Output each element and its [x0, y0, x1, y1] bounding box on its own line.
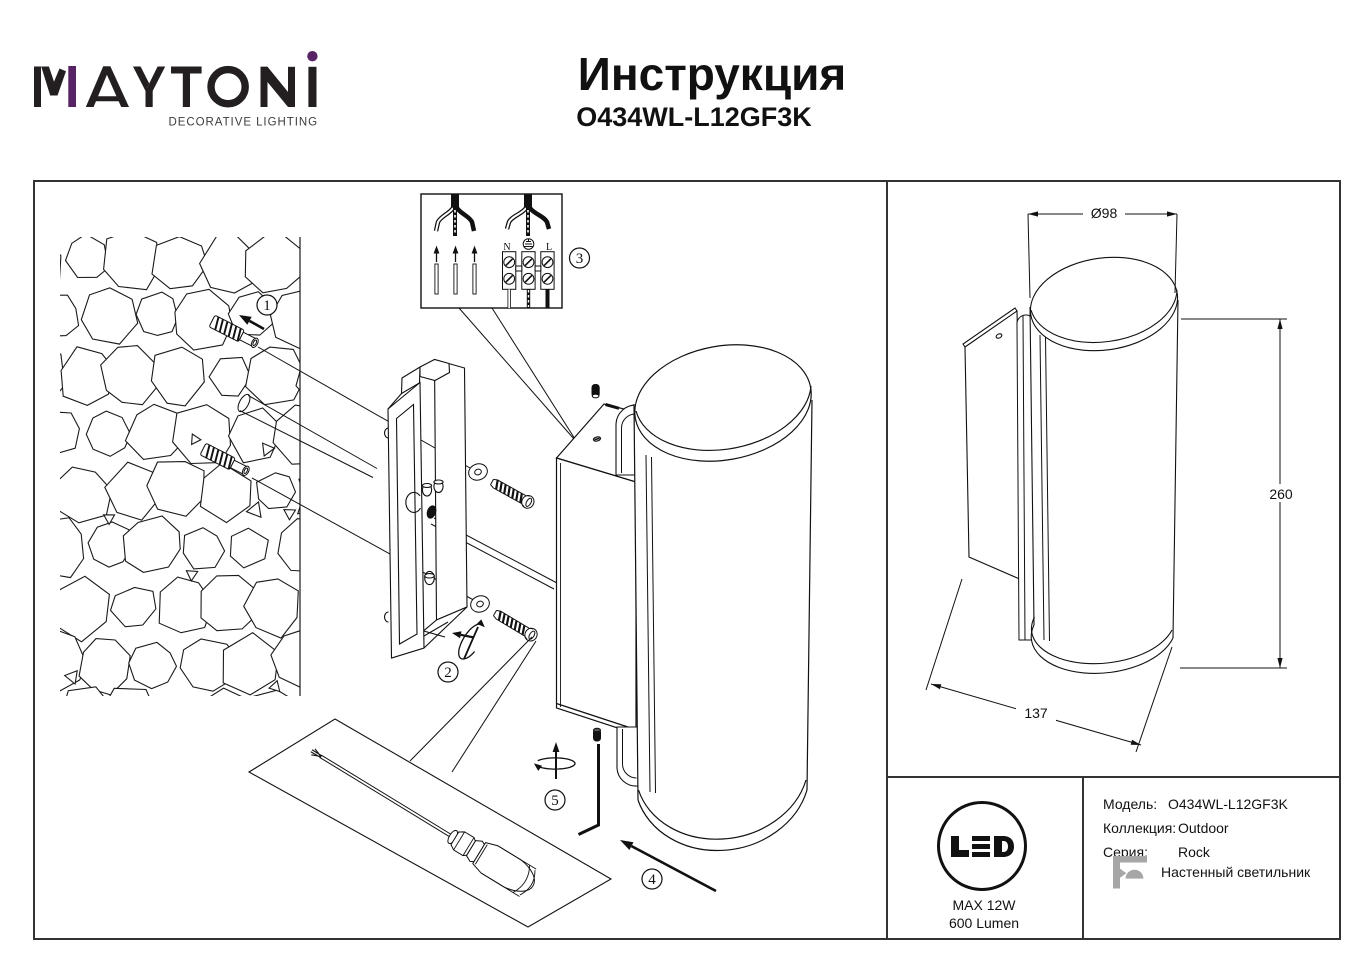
svg-text:4: 4 — [648, 872, 656, 888]
svg-text:O434WL-L12GF3K: O434WL-L12GF3K — [576, 102, 812, 132]
svg-text:2: 2 — [444, 665, 452, 681]
svg-text:137: 137 — [1024, 705, 1048, 721]
svg-text:O434WL-L12GF3K: O434WL-L12GF3K — [1168, 796, 1288, 812]
svg-text:260: 260 — [1269, 486, 1293, 502]
svg-text:Настенный светильник: Настенный светильник — [1161, 864, 1311, 880]
svg-text:MAX 12W: MAX 12W — [952, 897, 1016, 913]
svg-text:600 Lumen: 600 Lumen — [949, 915, 1019, 931]
svg-text:Rock: Rock — [1178, 844, 1211, 860]
svg-text:3: 3 — [576, 251, 584, 267]
svg-text:Коллекция:: Коллекция: — [1103, 820, 1176, 836]
svg-text:Модель:: Модель: — [1103, 796, 1157, 812]
svg-text:5: 5 — [551, 793, 559, 809]
svg-text:1: 1 — [263, 298, 271, 314]
svg-text:Ø98: Ø98 — [1091, 205, 1118, 221]
svg-text:Outdoor: Outdoor — [1178, 820, 1229, 836]
svg-text:Инструкция: Инструкция — [578, 48, 846, 100]
svg-text:DECORATIVE LIGHTING: DECORATIVE LIGHTING — [169, 117, 318, 129]
